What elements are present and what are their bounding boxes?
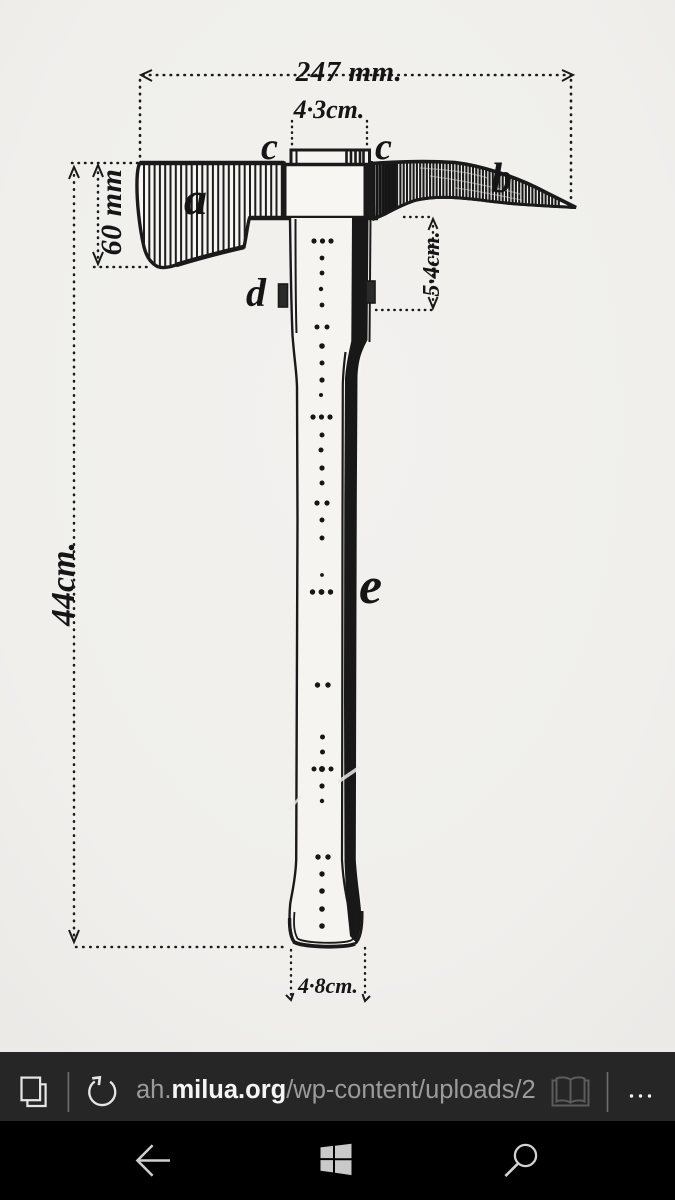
- svg-text:c: c: [261, 126, 278, 168]
- svg-text:4·8cm.: 4·8cm.: [297, 973, 358, 998]
- svg-text:b: b: [491, 156, 512, 202]
- svg-text:247 mm.: 247 mm.: [295, 56, 403, 88]
- svg-text:5·4cm.: 5·4cm.: [419, 231, 445, 296]
- svg-text:e: e: [359, 558, 382, 615]
- svg-text:44cm.: 44cm.: [45, 542, 82, 627]
- svg-text:d: d: [246, 270, 267, 315]
- svg-text:4·3cm.: 4·3cm.: [293, 95, 365, 124]
- svg-text:60 mm: 60 mm: [95, 169, 128, 256]
- svg-text:a: a: [184, 173, 207, 224]
- svg-text:c: c: [375, 126, 392, 168]
